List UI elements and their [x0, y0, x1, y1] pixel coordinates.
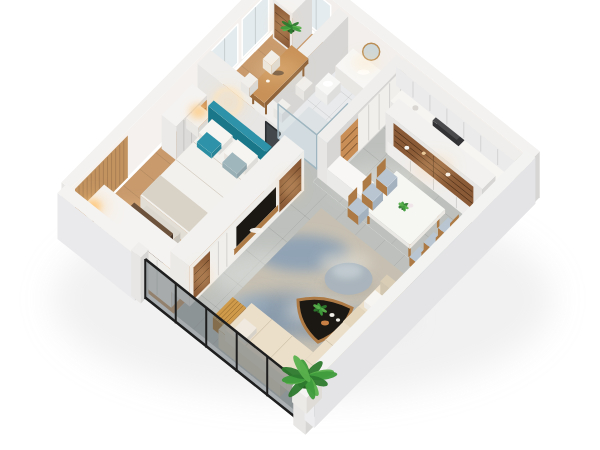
hutch-decor — [422, 151, 426, 155]
centerpiece-flowers — [407, 204, 413, 208]
floor-plan-viewport — [0, 0, 600, 450]
tv-decor-dish — [250, 228, 264, 233]
ottoman-highlight — [332, 263, 362, 279]
toilet-lid — [323, 81, 333, 87]
vanity-glow — [352, 53, 380, 71]
hutch-decor — [404, 146, 409, 150]
study-glow — [254, 59, 302, 81]
tv-wall-glow — [280, 173, 302, 199]
table-lamp-glow — [190, 104, 208, 118]
floorplan-3d-render — [0, 0, 600, 450]
hutch-glow — [413, 155, 453, 179]
kettle — [412, 105, 418, 110]
tv-wall-glow — [193, 263, 211, 289]
